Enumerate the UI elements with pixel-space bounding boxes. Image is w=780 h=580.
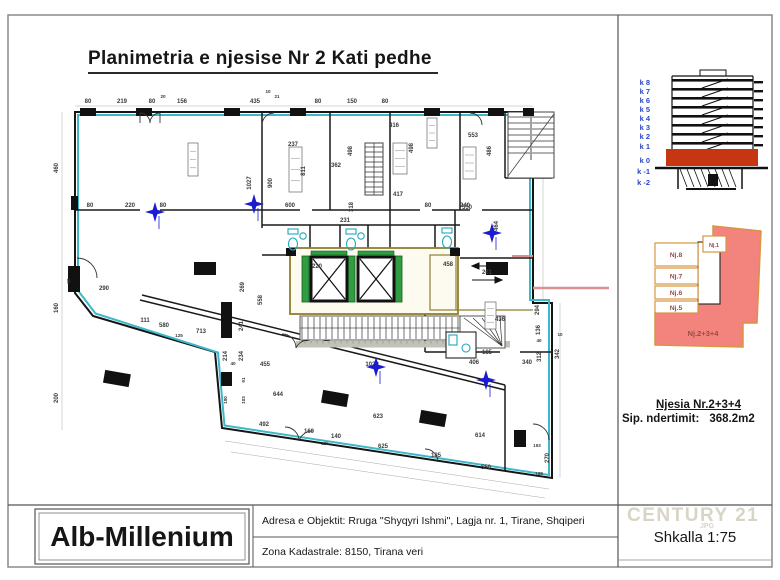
dimension-label: 168: [535, 471, 543, 476]
dimension-label: 318: [349, 201, 355, 212]
dimension-label: 80: [160, 203, 167, 209]
dimension-label: 156: [177, 99, 188, 105]
floor-label: k 1: [640, 142, 650, 151]
dimension-label: 80: [382, 99, 389, 105]
dimension-label: 558: [258, 294, 264, 305]
unit-area-label: Sip. ndertimit:: [622, 413, 699, 425]
dimension-label: 80: [85, 99, 92, 105]
dimension-label: 416: [389, 123, 400, 129]
dimension-label: 80: [425, 203, 432, 209]
unit-label: Nj.5: [670, 305, 683, 312]
unit-label: Nj.8: [670, 252, 683, 259]
dimension-label: 91: [241, 377, 246, 383]
dimension-label: 90: [66, 278, 71, 284]
unit-area-value: 368.2m2: [709, 413, 754, 425]
dimension-label: 498: [348, 145, 354, 156]
dimension-label: 811: [301, 166, 307, 176]
dimension-label: 600: [285, 203, 296, 209]
dimension-label: 80: [149, 99, 156, 105]
dimension-label: 241: [239, 320, 245, 331]
dimension-label: 80: [315, 99, 322, 105]
room-tag: [427, 118, 437, 148]
dimension-label: 20: [160, 94, 166, 99]
dimension-label: 160: [304, 429, 315, 435]
dimension-label: 180: [223, 396, 228, 404]
dimension-label: 103: [241, 396, 246, 404]
unit-label-main: Nj.2+3+4: [688, 329, 720, 338]
dimension-label: 290: [99, 286, 110, 292]
dimension-label: 580: [159, 323, 170, 329]
floor-label: k 8: [640, 78, 650, 87]
dimension-label: 140: [331, 434, 342, 440]
dimension-label: 136: [536, 324, 542, 335]
dimension-label: 237: [288, 142, 299, 148]
dimension-label: 80: [87, 203, 94, 209]
dimension-label: 312: [537, 351, 543, 362]
dimension-label: 269: [240, 281, 246, 292]
dimension-label: 436: [495, 317, 506, 323]
dimension-label: 219: [117, 99, 128, 105]
dimension-label: 486: [487, 145, 493, 156]
dimension-label: 498: [409, 142, 415, 153]
room-tag: [188, 143, 198, 176]
dimension-label: 458: [443, 262, 454, 268]
dimension-label: 625: [378, 444, 389, 450]
dimension-label: 550: [481, 465, 492, 471]
dimension-label: 342: [555, 348, 561, 359]
floor-label: k 3: [640, 123, 650, 132]
elevator-shafts: [302, 251, 402, 302]
dimension-label: 1027: [247, 176, 253, 190]
page-title: Planimetria e njesise Nr 2 Kati pedhe: [88, 48, 438, 74]
cad-canvas: 8021980156435801508020102146016020090802…: [0, 0, 780, 580]
unit-label: Nj.6: [670, 290, 683, 297]
dimension-label: 200: [54, 392, 60, 403]
building-section: k 8 k 7 k 6 k 5 k 4 k 3 k 2 k 1 k 0 k -1…: [637, 70, 768, 189]
dimension-label: 460: [54, 162, 60, 173]
unit-info-title: Njesia Nr.2+3+4: [656, 399, 768, 411]
dimension-label: 406: [469, 360, 480, 366]
dimension-label: 261: [482, 270, 493, 276]
unit-info: Njesia Nr.2+3+4 Sip. ndertimit: 368.2m2: [622, 399, 768, 425]
dimension-label: 340: [522, 360, 533, 366]
dimension-label: 614: [475, 433, 486, 439]
dimension-label: 125: [175, 333, 183, 338]
dimension-label: 362: [331, 163, 342, 169]
dimension-label: 40: [230, 361, 236, 366]
drawing-sheet: 8021980156435801508020102146016020090802…: [0, 0, 780, 580]
main-staircase: [296, 316, 510, 348]
dimension-label: 21: [274, 94, 280, 99]
dimension-label: 185: [482, 350, 493, 356]
scale-label: Shkalla 1:75: [618, 529, 772, 546]
floor-plan: 8021980156435801508020102146016020090802…: [54, 89, 609, 498]
dimension-label: 492: [259, 422, 270, 428]
object-address: Adresa e Objektit: Rruga "Shyqyri Ishmi"…: [262, 515, 612, 527]
floor-label: k -1: [637, 167, 650, 176]
unit-key-plan: Nj.8 Nj.7 Nj.6 Nj.5 Nj.1 Nj.2+3+4: [655, 226, 761, 347]
dimension-label: 435: [250, 99, 261, 105]
dimension-label: 220: [125, 203, 136, 209]
dimension-label: 464: [494, 220, 500, 231]
dimension-label: 231: [340, 218, 351, 224]
dimension-label: 40: [536, 338, 542, 343]
company-name: Alb-Millenium: [35, 509, 249, 564]
dimension-label: 160: [54, 302, 60, 313]
dimension-label: 713: [196, 329, 207, 335]
dimension-label: 111: [140, 318, 150, 324]
dimension-label: 220: [312, 264, 323, 270]
dimension-label: 900: [268, 177, 274, 188]
unit-label-top: Nj.1: [709, 243, 719, 249]
floor-label: k 7: [640, 87, 650, 96]
room-tag: [393, 143, 407, 174]
dimension-label: 644: [273, 392, 284, 398]
floor-label: k 4: [640, 114, 651, 123]
dimension-label: 553: [468, 133, 479, 139]
dimension-label: 270: [545, 452, 551, 463]
dimension-label: 294: [535, 304, 541, 315]
dimension-label: 417: [393, 192, 404, 198]
cadastral-zone: Zona Kadastrale: 8150, Tirana veri: [262, 546, 612, 558]
room-tag: [485, 302, 496, 329]
dimension-label: 193: [533, 443, 541, 448]
dimension-label: 185: [431, 453, 442, 459]
unit-label: Nj.7: [670, 274, 683, 281]
dimension-label: 550: [462, 205, 473, 211]
dimension-label: 150: [347, 99, 358, 105]
dimension-label: 214: [223, 350, 229, 361]
floor-labels: k 8 k 7 k 6 k 5 k 4 k 3 k 2 k 1 k 0 k -1…: [637, 78, 651, 187]
dimension-label: 234: [239, 350, 245, 361]
dimension-label: 10: [265, 89, 271, 94]
highlighted-floor-band: [666, 149, 758, 166]
room-tag: [463, 147, 476, 179]
dimension-label: 10: [557, 332, 563, 337]
floor-label: k -2: [637, 178, 650, 187]
floor-label: k 6: [640, 96, 650, 105]
dimension-label: 125: [321, 441, 329, 446]
floor-label: k 2: [640, 132, 650, 141]
floor-label: k 5: [640, 105, 650, 114]
floor-label: k 0: [640, 156, 650, 165]
dimension-label: 623: [373, 414, 384, 420]
dimension-label: 455: [260, 362, 271, 368]
